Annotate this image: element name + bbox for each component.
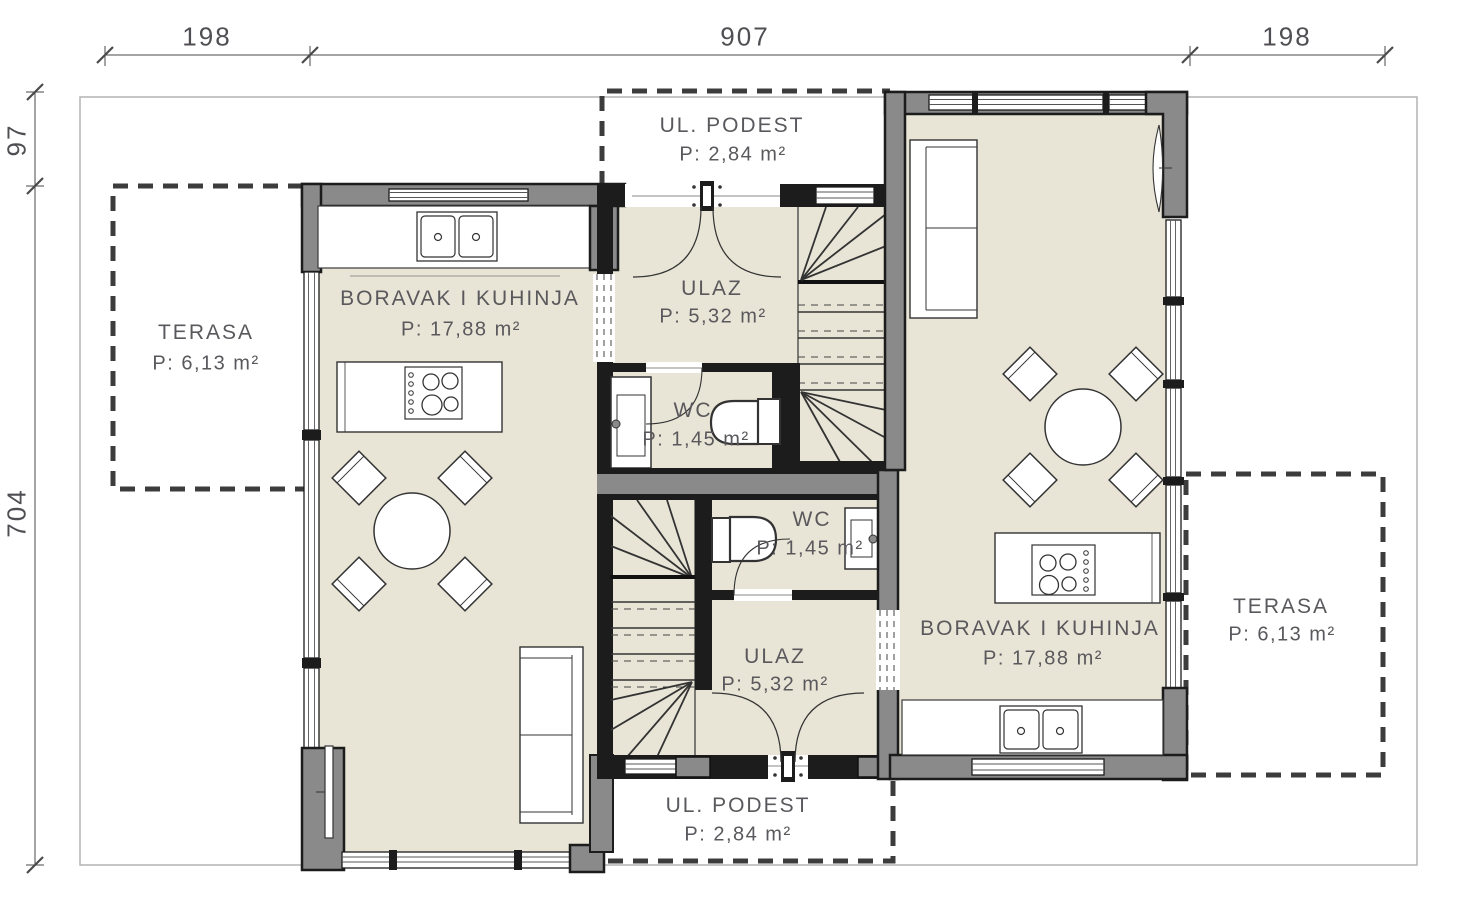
room-label-wc-bottom-name: WC <box>793 508 832 532</box>
room-label-wc-bottom-area: P: 1,45 m² <box>756 538 863 561</box>
room-label-boravak-left-name: BORAVAK I KUHINJA <box>340 287 580 311</box>
room-label-boravak-left-area: P: 17,88 m² <box>401 319 521 342</box>
room-label-boravak-right-area: P: 17,88 m² <box>983 648 1103 671</box>
room-label-ul-podest-top-area: P: 2,84 m² <box>679 144 786 167</box>
right-unit-sofa <box>910 140 977 318</box>
room-label-terasa-left-area: P: 6,13 m² <box>152 353 259 376</box>
podest-bottom-outline <box>608 779 893 861</box>
room-label-terasa-right-name: TERASA <box>1233 595 1329 619</box>
right-unit-kitchen-counter <box>902 700 1163 755</box>
room-label-terasa-left-name: TERASA <box>158 321 254 345</box>
left-unit-kitchen-counter <box>318 206 592 276</box>
dimension-label-side-top: 97 <box>2 124 33 157</box>
room-label-ulaz-top-name: ULAZ <box>681 277 743 301</box>
dimension-label-top-left: 198 <box>182 22 231 53</box>
room-label-terasa-right-area: P: 6,13 m² <box>1228 624 1335 647</box>
dimension-label-top-right: 198 <box>1262 22 1311 53</box>
room-label-boravak-right-name: BORAVAK I KUHINJA <box>920 617 1160 641</box>
dimension-label-top-middle: 907 <box>720 22 769 53</box>
left-unit-island-cooktop <box>337 362 502 432</box>
middle-right-wall <box>876 470 900 779</box>
dimension-label-side-main: 704 <box>2 488 33 537</box>
room-label-wc-top-name: WC <box>674 399 713 423</box>
entry-bottom-wall <box>597 751 895 782</box>
room-label-ul-podest-bottom-name: UL. PODEST <box>666 794 811 818</box>
room-label-ulaz-bottom-name: ULAZ <box>744 645 806 669</box>
right-unit-island-cooktop <box>995 533 1160 603</box>
room-label-ul-podest-bottom-area: P: 2,84 m² <box>684 824 791 847</box>
room-label-ulaz-top-area: P: 5,32 m² <box>659 306 766 329</box>
podest-top-outline <box>602 91 890 186</box>
middle-corridor-wall <box>597 468 892 500</box>
room-label-wc-top-area: P: 1,45 m² <box>642 429 749 452</box>
room-label-ulaz-bottom-area: P: 5,32 m² <box>721 674 828 697</box>
left-unit-sofa <box>520 647 583 823</box>
floor-plan-canvas: 198 907 198 97 704 TERASA P: 6,13 m² BOR… <box>0 0 1465 901</box>
room-label-ul-podest-top-name: UL. PODEST <box>660 114 805 138</box>
